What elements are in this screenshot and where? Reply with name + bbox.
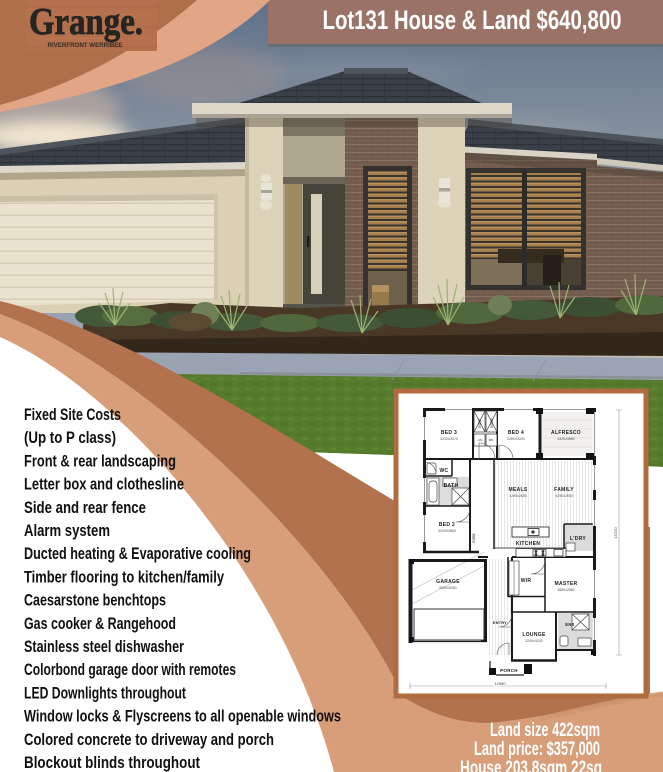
svg-text:GARAGE: GARAGE [436, 579, 460, 585]
svg-text:BATH: BATH [444, 483, 459, 489]
svg-text:Timber flooring to kitchen/fam: Timber flooring to kitchen/family [24, 567, 224, 586]
svg-text:12980: 12980 [494, 681, 506, 686]
svg-text:4290x2850: 4290x2850 [509, 494, 526, 498]
svg-text:3880x2880: 3880x2880 [557, 588, 574, 592]
svg-text:3200X3860: 3200X3860 [438, 529, 456, 533]
svg-text:3320x3580: 3320x3580 [557, 437, 574, 441]
svg-text:3280X3200: 3280X3200 [507, 437, 525, 441]
svg-text:MEALS: MEALS [509, 487, 528, 493]
svg-text:House 203.8sqm 22sq: House 203.8sqm 22sq [460, 758, 602, 772]
svg-text:Ducted heating & Evaporative c: Ducted heating & Evaporative cooling [24, 544, 251, 563]
svg-text:(Up to P class): (Up to P class) [24, 428, 116, 447]
svg-text:Colorbond garage door with rem: Colorbond garage door with remotes [24, 660, 236, 679]
svg-text:Gas cooker & Rangehood: Gas cooker & Rangehood [24, 614, 176, 633]
svg-text:3240x3200: 3240x3200 [525, 639, 542, 643]
svg-text:Stainless steel dishwasher: Stainless steel dishwasher [24, 637, 184, 656]
svg-text:Colored concrete to driveway a: Colored concrete to driveway and porch [24, 730, 274, 749]
svg-text:ROBE: ROBE [478, 417, 482, 427]
svg-text:MASTER: MASTER [555, 581, 578, 587]
svg-text:FAMILY: FAMILY [554, 487, 574, 493]
svg-text:Blockout blinds throughout: Blockout blinds throughout [24, 753, 200, 772]
svg-text:3230X3070: 3230X3070 [440, 437, 458, 441]
svg-text:L'DRY: L'DRY [570, 536, 586, 542]
svg-text:Land size 422sqm: Land size 422sqm [490, 720, 600, 741]
svg-text:ROBE: ROBE [472, 532, 476, 542]
svg-text:Lot131 House & Land $640,800: Lot131 House & Land $640,800 [323, 5, 622, 35]
svg-text:Alarm system: Alarm system [24, 521, 110, 540]
svg-text:BED 2: BED 2 [439, 522, 455, 528]
svg-text:Caesarstone benchtops: Caesarstone benchtops [24, 591, 166, 610]
svg-text:BED 3: BED 3 [441, 430, 457, 436]
svg-text:Front & rear landscaping: Front & rear landscaping [24, 451, 176, 470]
svg-text:Letter box and clothesline: Letter box and clothesline [24, 475, 184, 494]
svg-text:4290x2930: 4290x2930 [555, 494, 572, 498]
svg-text:ENS: ENS [565, 622, 575, 627]
svg-text:LIN: LIN [478, 438, 483, 442]
svg-text:Land price: $357,000: Land price: $357,000 [474, 739, 600, 760]
svg-text:Side and rear fence: Side and rear fence [24, 498, 146, 517]
svg-text:ENTRY: ENTRY [493, 621, 507, 625]
svg-text:15220: 15220 [613, 527, 618, 539]
svg-text:Window locks & Flyscreens to a: Window locks & Flyscreens to all openabl… [24, 707, 341, 726]
svg-text:KITCHEN: KITCHEN [516, 541, 540, 547]
svg-text:LED Downlights throughout: LED Downlights throughout [24, 683, 186, 702]
svg-text:ROBE: ROBE [490, 417, 494, 427]
svg-text:RIVERFRONT WERRIBEE: RIVERFRONT WERRIBEE [48, 42, 123, 49]
svg-text:WIR: WIR [521, 578, 532, 584]
svg-text:ALFRESCO: ALFRESCO [551, 430, 581, 436]
svg-text:BED 4: BED 4 [508, 430, 524, 436]
svg-text:Fixed Site Costs: Fixed Site Costs [24, 405, 121, 424]
svg-text:PORCH: PORCH [500, 668, 518, 673]
svg-text:LOUNGE: LOUNGE [522, 632, 546, 638]
svg-text:Grange.: Grange. [29, 1, 143, 43]
svg-text:WC: WC [440, 468, 449, 474]
svg-text:6000x5380: 6000x5380 [439, 586, 456, 590]
